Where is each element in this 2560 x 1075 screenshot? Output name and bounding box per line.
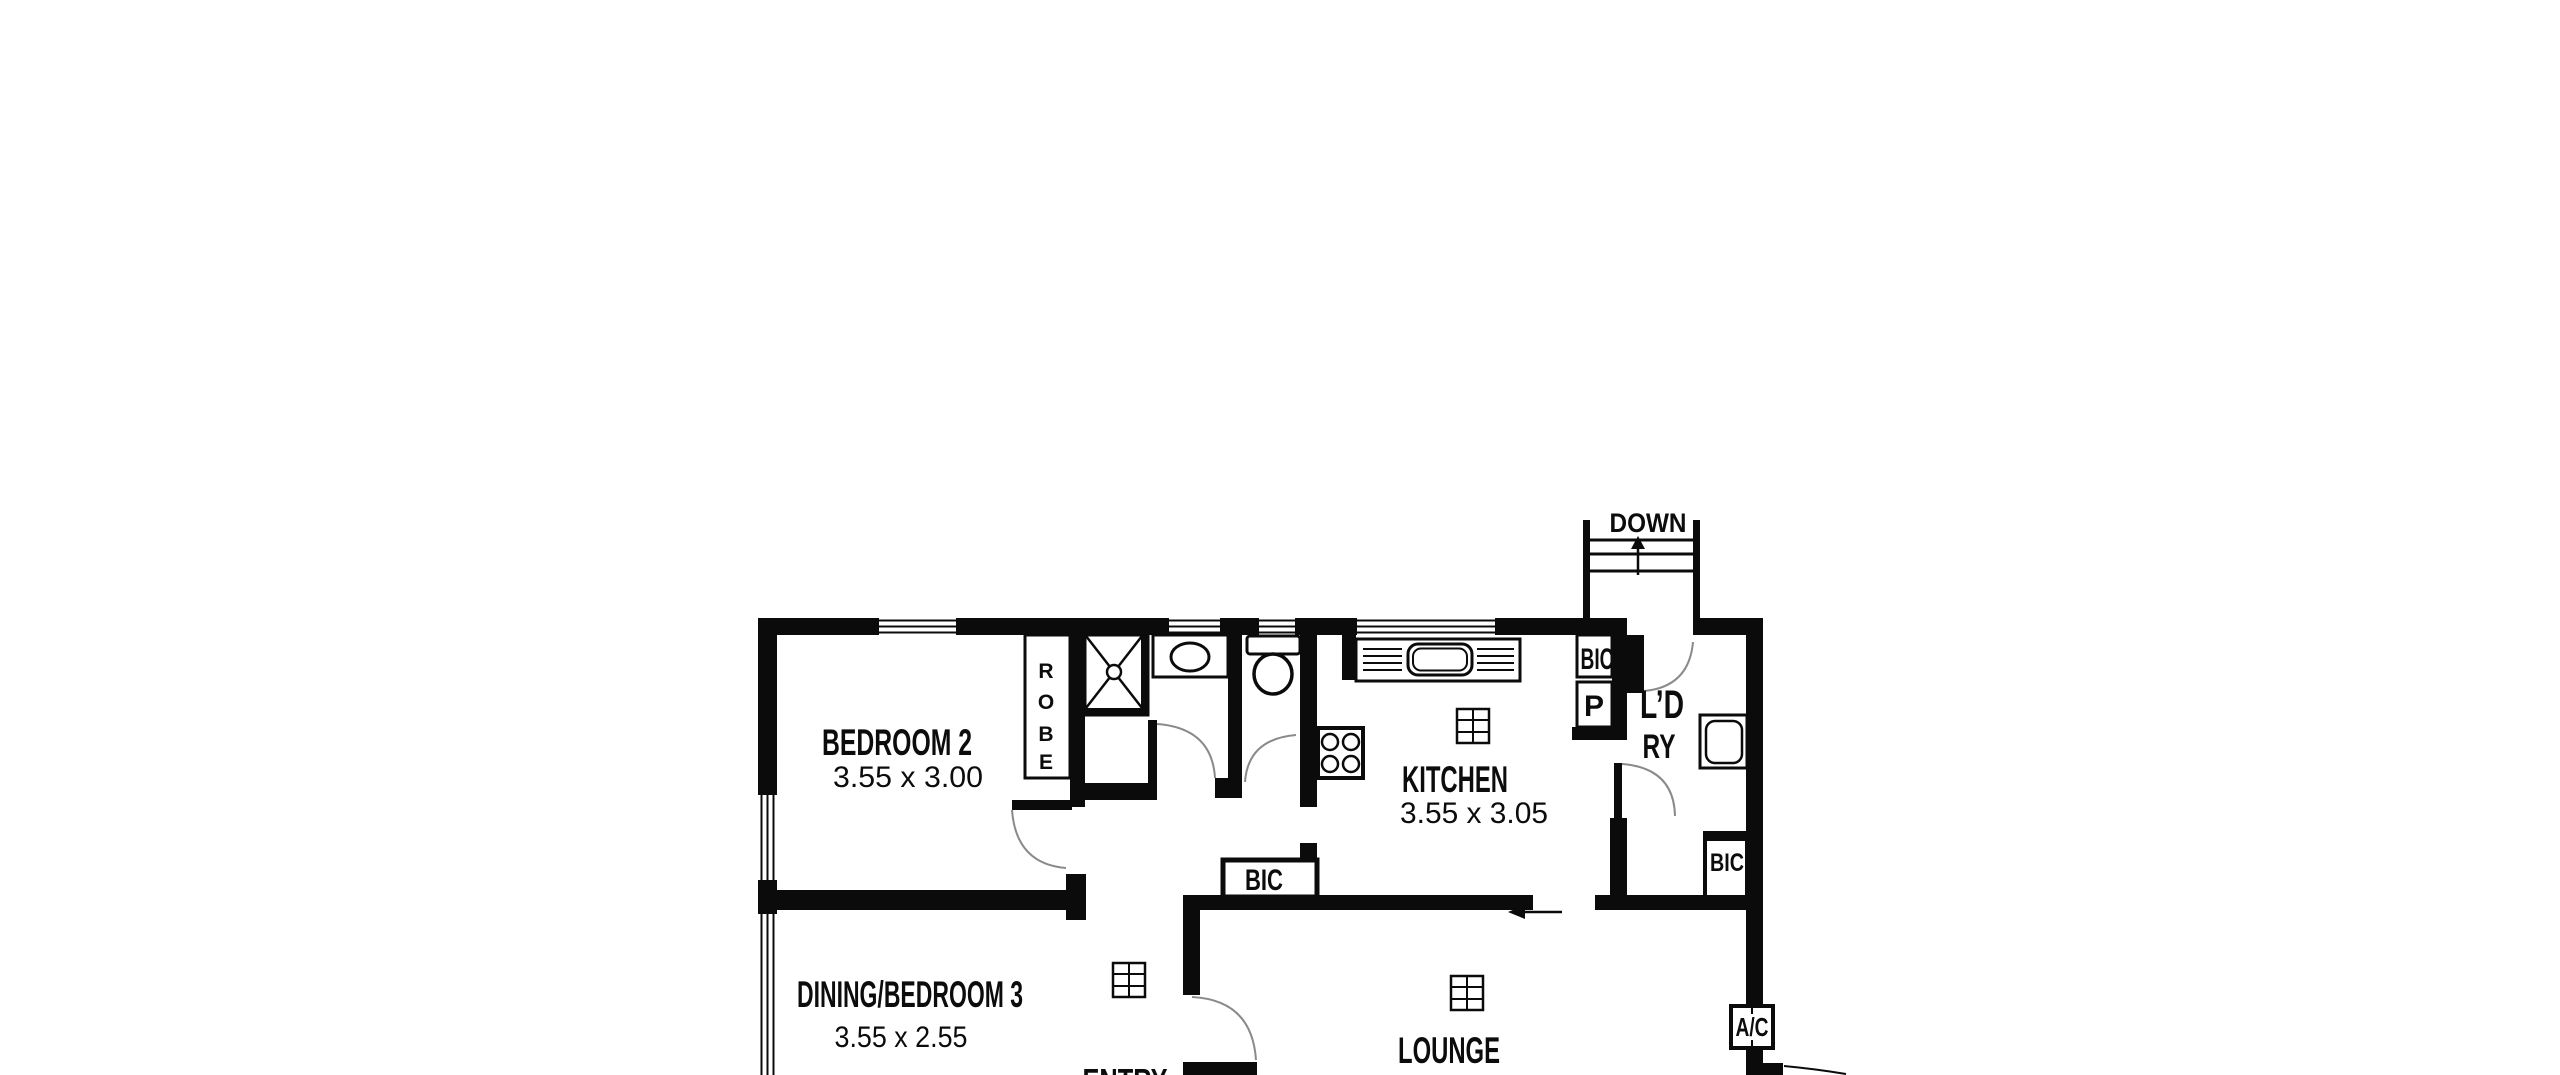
heater-vent-icon <box>1457 709 1489 743</box>
robe-letter: E <box>1039 751 1053 774</box>
room-dims-kitchen: 3.55 x 3.05 <box>1400 797 1548 830</box>
robe-letter: R <box>1038 660 1053 683</box>
room-dims-bedroom2: 3.55 x 3.00 <box>833 761 983 794</box>
lounge-bic-label: BIC <box>1710 849 1744 877</box>
stove-icon <box>1318 728 1363 778</box>
room-label-bedroom2: BEDROOM 2 <box>822 722 972 763</box>
heater-vent-icon <box>1451 976 1483 1010</box>
ac-label: A/C <box>1736 1012 1769 1042</box>
room-label-laundry-line2: RY <box>1643 728 1676 766</box>
room-label-kitchen: KITCHEN <box>1402 759 1508 800</box>
kitchen-bic-label: BIC <box>1581 643 1614 676</box>
vanity-basin-icon <box>1153 635 1228 677</box>
floor-plan: BEDROOM 2 3.55 x 3.00 DINING/BEDROOM 3 3… <box>0 0 2560 1075</box>
kitchen-sink-icon <box>1356 639 1520 681</box>
toilet-icon <box>1247 636 1300 694</box>
pantry-label: P <box>1584 690 1604 723</box>
room-label-dining-bedroom3: DINING/BEDROOM 3 <box>797 974 1023 1015</box>
heater-vent-icon <box>1113 963 1145 997</box>
stairs-down-label: DOWN <box>1610 508 1687 538</box>
floor-plan-page: BEDROOM 2 3.55 x 3.00 DINING/BEDROOM 3 3… <box>0 0 2560 1075</box>
site-boundary-line <box>1784 1066 1846 1074</box>
shower-icon <box>1085 635 1148 715</box>
room-label-entry: ENTRY <box>1083 1062 1168 1075</box>
room-dims-dining-bedroom3: 3.55 x 2.55 <box>835 1021 968 1054</box>
laundry-tub-icon <box>1700 715 1747 768</box>
robe-letter: B <box>1038 723 1053 746</box>
room-label-lounge: LOUNGE <box>1398 1030 1500 1071</box>
hall-bic-label: BIC <box>1245 864 1283 897</box>
robe-letter: O <box>1038 691 1054 714</box>
room-label-laundry-line1: L’D <box>1640 683 1684 727</box>
